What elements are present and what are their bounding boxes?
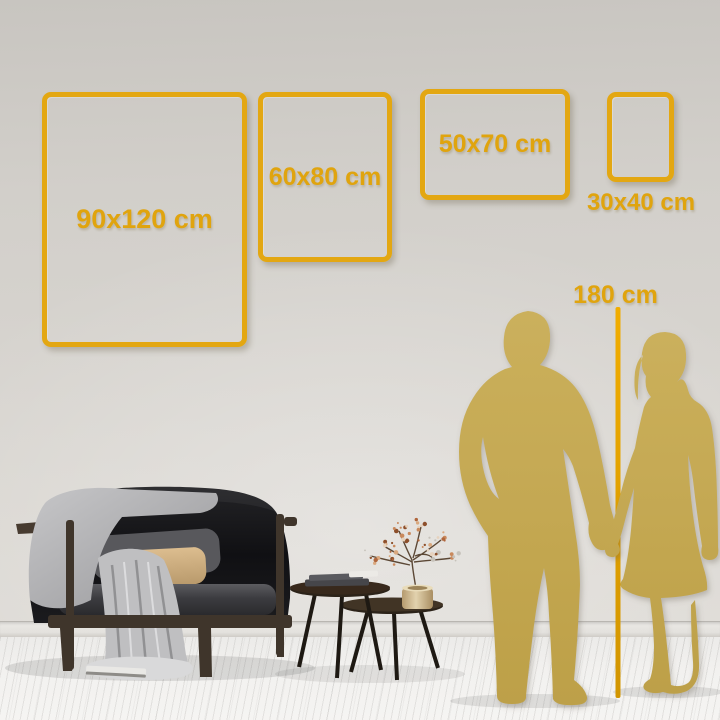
- size-guide-mockup: 90x120 cm 60x80 cm 50x70 cm 30x40 cm 180…: [0, 0, 720, 720]
- frame-30x40: [607, 92, 674, 182]
- frame-60x80-label: 60x80 cm: [269, 163, 382, 192]
- frame-50x70: 50x70 cm: [420, 89, 570, 200]
- frame-60x80: 60x80 cm: [258, 92, 392, 262]
- frame-90x120-label: 90x120 cm: [76, 204, 213, 235]
- frame-30x40-label: 30x40 cm: [575, 189, 707, 217]
- baseboard: [0, 621, 720, 637]
- frame-90x120: 90x120 cm: [42, 92, 247, 347]
- plank-floor: [0, 637, 720, 720]
- frame-50x70-label: 50x70 cm: [439, 130, 552, 159]
- height-reference-label: 180 cm: [563, 281, 668, 310]
